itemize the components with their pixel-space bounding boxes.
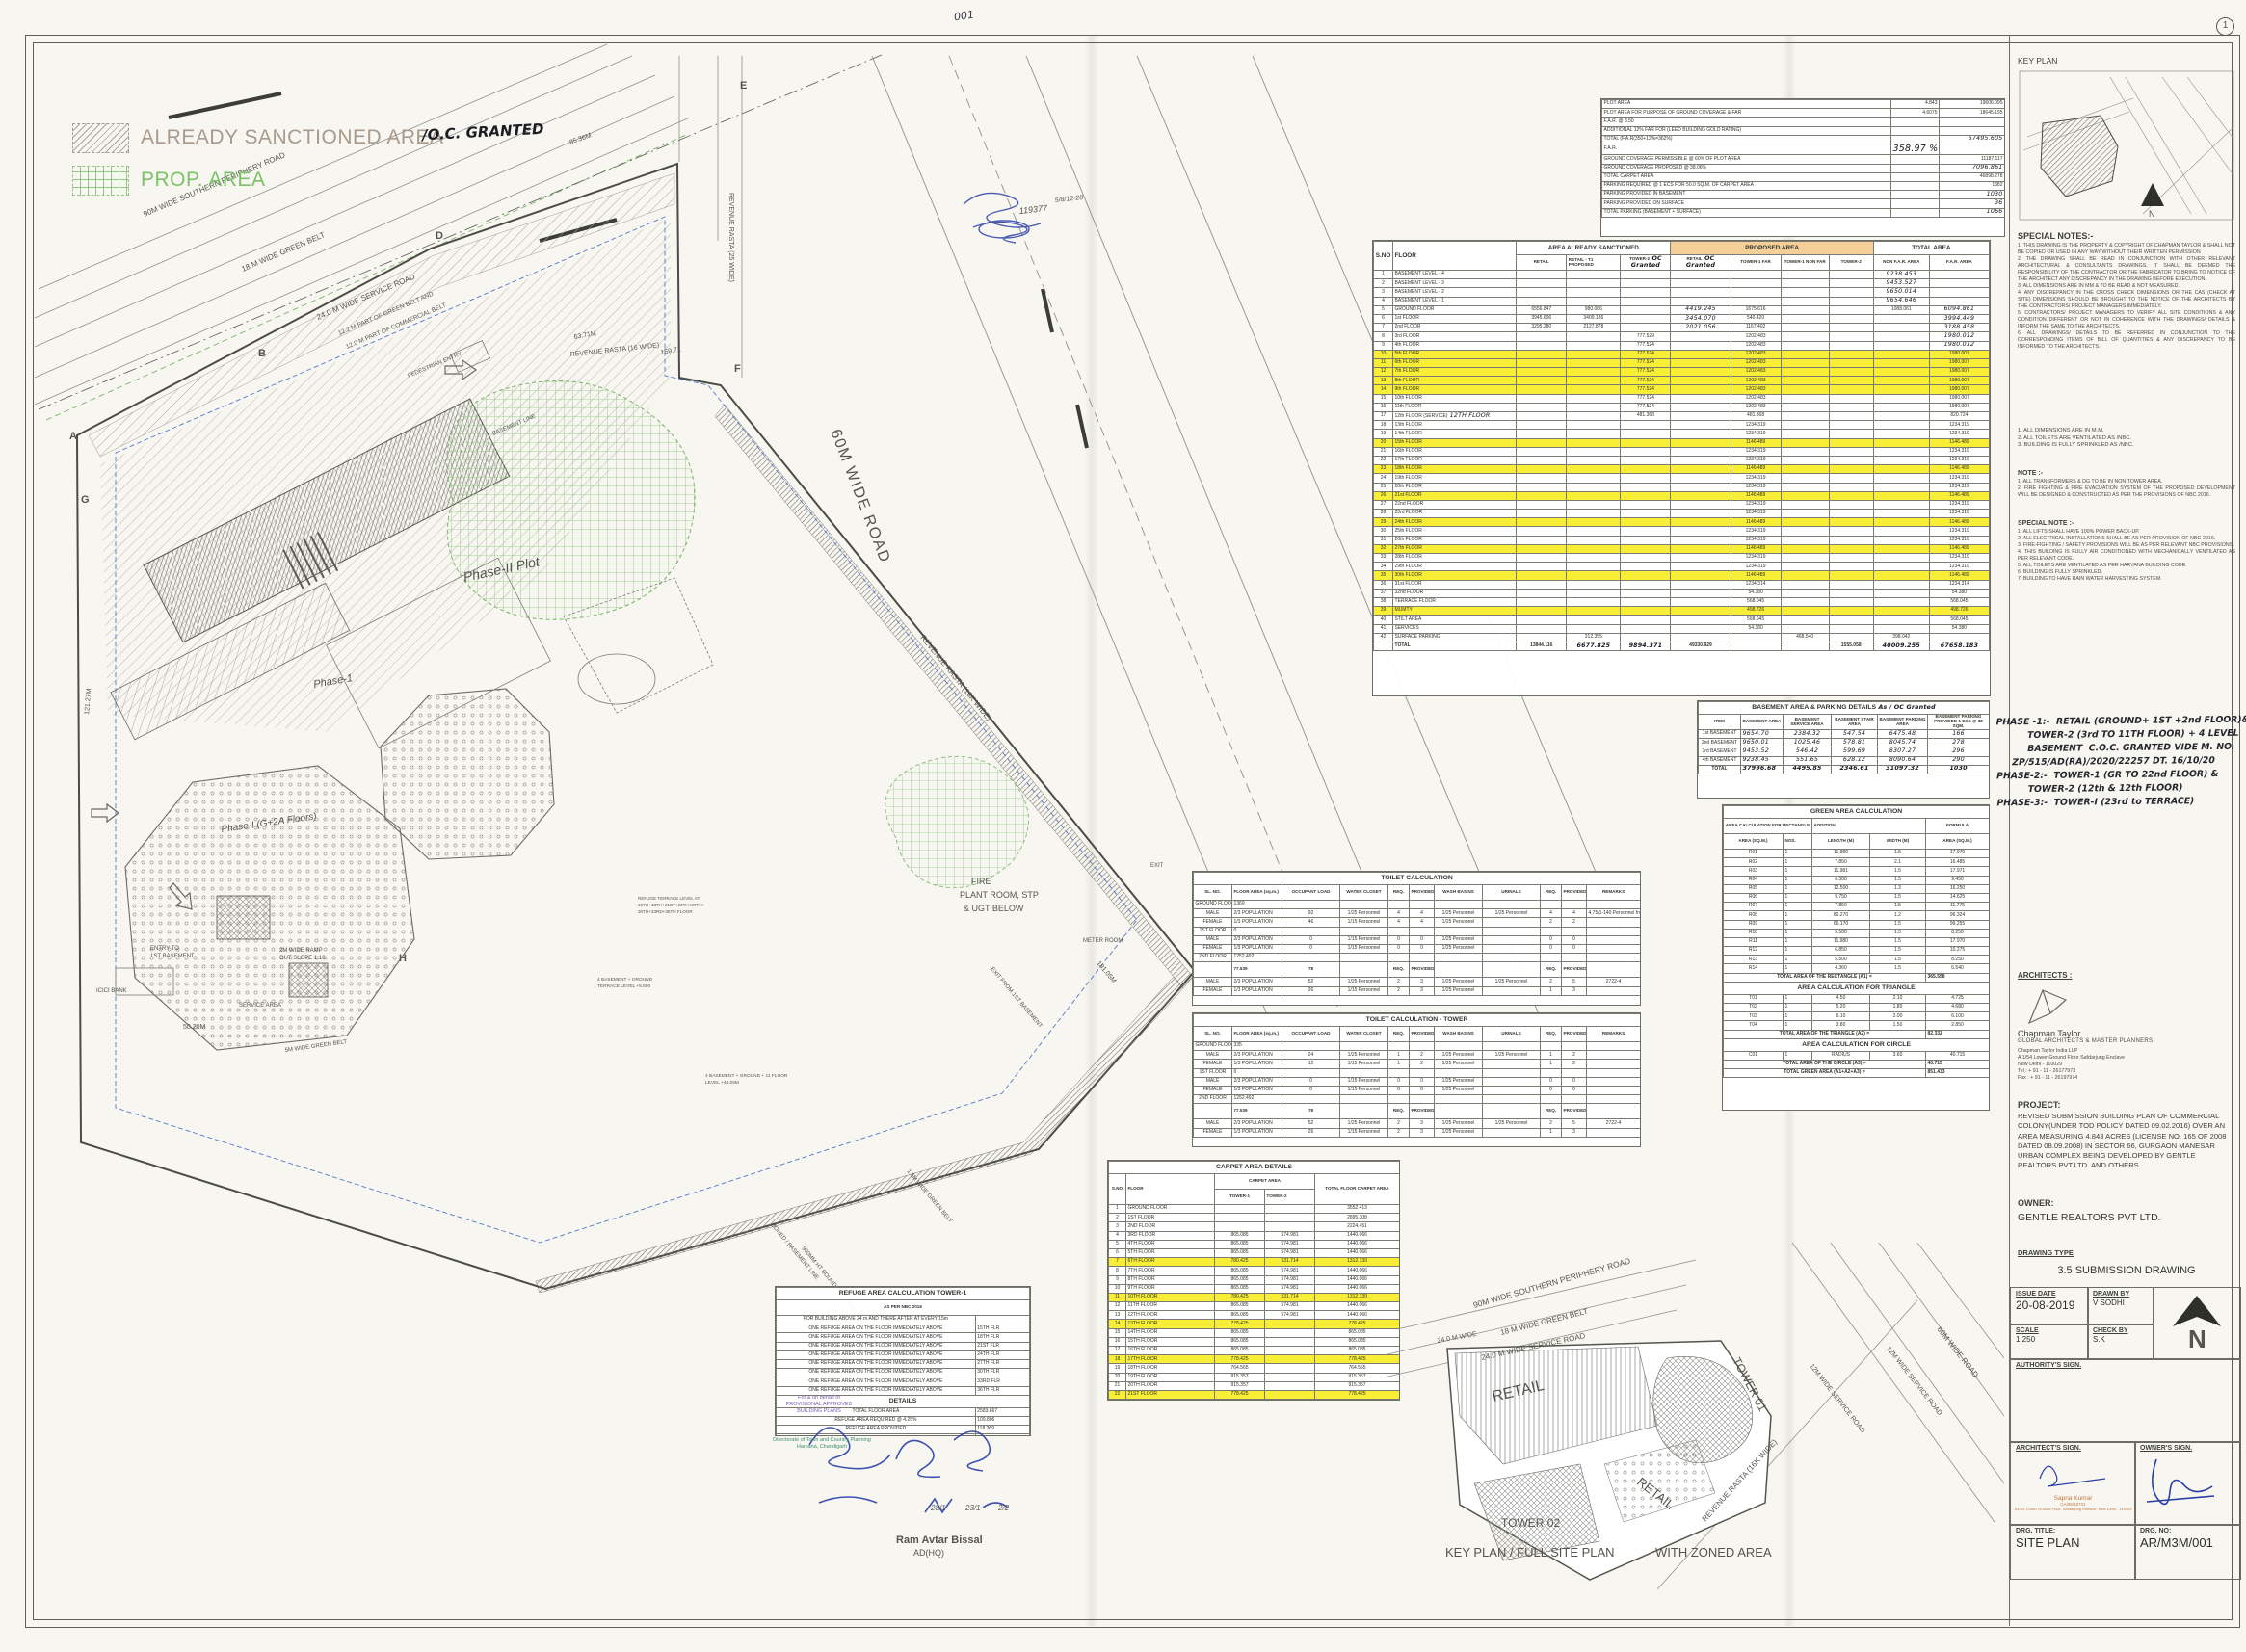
plan-label-refuge: 15TH+18TH+21ST+24TH+27TH+: [638, 903, 705, 907]
note-section: NOTE :- 1. ALL TRANSFORMERS & DG TO BE I…: [2018, 470, 2235, 499]
keyplan-road-label: 24.0 M WIDE: [1437, 1331, 1478, 1345]
grid-letter: G: [81, 494, 90, 506]
road-label: REVENUE RASTA (25 WIDE): [727, 193, 734, 282]
keyplan-road-label: 90M WIDE SOUTHERN PERIPHERY ROAD: [1472, 1256, 1631, 1310]
special-note-section: SPECIAL NOTE :- 1. ALL LIFTS SHALL HAVE …: [2018, 520, 2235, 583]
plan-label-refuge: 30TH+33RD+36TH FLOOR: [638, 909, 693, 914]
plan-label-level: 4 BASEMENT + GROUND: [597, 977, 653, 983]
toilet-table-1: TOILET CALCULATIONSL. NO.FLOOR AREA (sq.…: [1193, 872, 1640, 1005]
architect-signature: [2011, 1452, 2131, 1490]
plan-label: EXIT: [1150, 863, 1164, 869]
plan-label: METER ROOM: [1083, 938, 1123, 944]
dimension: 121.27M: [84, 688, 92, 715]
keyplan-bottom: RETAIL TOWER 01 RETAIL TOWER 02 90M WIDE…: [1378, 1243, 2004, 1589]
hw-date: 23/1: [964, 1504, 981, 1512]
authority-sign-box: AUTHORITY'S SIGN.: [2010, 1358, 2241, 1443]
keyplan-road-label: 60M WIDE ROAD: [1935, 1325, 1980, 1379]
north-label: N: [2149, 209, 2155, 219]
owner-section: OWNER: GENTLE REALTORS PVT LTD.: [2018, 1198, 2235, 1223]
drawn-by-box: DRAWN BY V SODHI: [2087, 1287, 2154, 1325]
north-box: N: [2153, 1287, 2241, 1360]
plan-label: EXIT FROM 1ST BASEMENT: [989, 966, 1043, 1029]
panel-keyplan-map: N: [2018, 69, 2235, 222]
floor-area-table: S.NOFLOORAREA ALREADY SANCTIONEDPROPOSED…: [1373, 241, 1990, 695]
plan-label-plant-room: PLANT ROOM, STP: [960, 890, 1039, 900]
project-body: REVISED SUBMISSION BUILDING PLAN OF COMM…: [2018, 1112, 2235, 1171]
grid-letter: E: [740, 80, 747, 92]
owner-title: OWNER:: [2018, 1198, 2235, 1208]
keyplan-caption: KEY PLAN / FULL SITE PLAN: [1445, 1545, 1615, 1560]
summary-table: PLOT AREA4.84319606.095PLOT AREA FOR PUR…: [1601, 99, 2004, 236]
drawing-type-value: 3.5 SUBMISSION DRAWING: [2018, 1265, 2235, 1276]
phase-notes-handwritten: PHASE -1:- RETAIL (GROUND+ 1ST +2nd FLOO…: [1995, 714, 2246, 810]
dimension: 181.05M: [1095, 960, 1117, 984]
keyplan-title: KEY PLAN: [2018, 56, 2235, 66]
plan-label-plant-room: & UGT BELOW: [964, 904, 1024, 913]
dimension: 50.20M: [183, 1024, 206, 1031]
page-number: 1: [2216, 17, 2234, 36]
svg-text:N: N: [2188, 1324, 2206, 1353]
owner-name: GENTLE REALTORS PVT LTD.: [2018, 1212, 2235, 1223]
note-title: NOTE :-: [2018, 470, 2235, 477]
plan-label-level: TERRACE LEVEL +5.500: [597, 983, 650, 989]
project-title: PROJECT:: [2018, 1100, 2235, 1110]
carpet-area-table: CARPET AREA DETAILSS.NOFLOORCARPET AREAT…: [1108, 1161, 1399, 1400]
plan-label-level: 4 BASEMENT + GROUND + 11 FLOOR: [705, 1073, 788, 1079]
drg-title-box: DRG. TITLE: SITE PLAN: [2010, 1524, 2136, 1580]
dimension: 85.36M: [568, 132, 592, 146]
project-section: PROJECT: REVISED SUBMISSION BUILDING PLA…: [2018, 1100, 2235, 1171]
grid-letter: F: [734, 363, 741, 375]
scale-box: SCALE 1:250: [2010, 1324, 2089, 1360]
basement-parking-table: BASEMENT AREA & PARKING DETAILS As / OC …: [1698, 701, 1989, 798]
plan-label: OUT SLOPE 1:10: [279, 956, 326, 961]
hw-date: 2/2: [997, 1504, 1010, 1512]
plan-label: ZONED / BASEMENT LINE: [769, 1222, 819, 1280]
plan-label-icici-bank: ICICI BANK: [96, 988, 127, 994]
plan-label: 2M WIDE RAMP: [279, 948, 323, 954]
owner-signature: [2135, 1452, 2236, 1511]
architects-title: ARCHITECTS :: [2018, 971, 2235, 980]
toilet-table-2: TOILET CALCULATION - TOWERSL. NO.FLOOR A…: [1193, 1013, 1640, 1146]
plan-label-refuge: REFUGE TERRACE LEVEL AT: [638, 896, 700, 901]
approval-signatures: 28/1 23/1 2/2 Ram Avtar Bissal AD(HQ): [752, 1387, 1079, 1589]
owner-sign-box: OWNER'S SIGN.: [2134, 1441, 2241, 1526]
keyplan-road-label: 12M WIDE SERVICE ROAD: [1808, 1363, 1865, 1434]
plan-label: SERVICE AREA: [239, 1003, 281, 1009]
hw-blue-date: 5/8/12-20: [1054, 195, 1083, 204]
road-label: 18 M WIDE GREEN BELT: [240, 230, 326, 274]
architect-logo: [2021, 984, 2070, 1027]
drawing-type-section: DRAWING TYPE 3.5 SUBMISSION DRAWING: [2018, 1248, 2235, 1276]
plan-label-level: LEVEL +44.05M: [705, 1080, 739, 1086]
north-arrow: N: [2154, 1288, 2240, 1359]
special-note-title: SPECIAL NOTE :-: [2018, 520, 2235, 527]
issue-date-box: ISSUE DATE 20-08-2019: [2010, 1287, 2089, 1325]
drg-no-box: DRG. NO: AR/M3M/001: [2134, 1524, 2241, 1580]
keyplan-road-label: 12M WIDE SERVICE ROAD: [1885, 1346, 1942, 1417]
grid-letter: A: [69, 431, 77, 442]
dimension-notes: 1. ALL DIMENSIONS ARE IN M.M.2. ALL TOIL…: [2018, 428, 2235, 450]
grid-letter: H: [399, 953, 407, 964]
architect-sign-box: ARCHITECT'S SIGN. Sapna Kumar CA/95/1873…: [2010, 1441, 2136, 1526]
legend-swatch-sanctioned: [72, 123, 129, 153]
green-area-table: GREEN AREA CALCULATIONAREA CALCULATION F…: [1723, 805, 1989, 1110]
stamp-designation: AD(HQ): [913, 1548, 944, 1558]
drawing-type-title: DRAWING TYPE: [2018, 1248, 2235, 1257]
hw-blue-number: 119377: [1018, 203, 1048, 216]
legend-swatch-prop: [72, 166, 129, 196]
stamp-name: Ram Avtar Bissal: [896, 1534, 983, 1546]
drawing-sheet: 1 001: [0, 0, 2246, 1652]
keyplan-caption: WITH ZONED AREA: [1655, 1545, 1772, 1560]
grid-letter: B: [258, 348, 266, 359]
plan-label: ENTRY TO: [150, 946, 179, 952]
check-by-box: CHECK BY S.K: [2087, 1324, 2154, 1360]
legend-prop-label: PROP. AREA: [141, 169, 266, 192]
stamp-green: Directorate of Town and Country Planning…: [759, 1437, 885, 1451]
plan-label-fire: FIRE: [971, 877, 991, 886]
architect-firm: Chapman Taylor GLOBAL ARCHITECTS & MASTE…: [2018, 1029, 2235, 1082]
grid-letter: D: [436, 230, 443, 242]
hw-date: 28/1: [930, 1504, 946, 1512]
special-notes-title: SPECIAL NOTES:-: [2018, 231, 2235, 241]
stamp-purple: For & on behalf ofPROVISIONAL APPROVEDBU…: [761, 1395, 877, 1415]
plan-label: 1ST BASEMENT: [150, 954, 195, 959]
special-notes: SPECIAL NOTES:- 1. THIS DRAWING IS THE P…: [2018, 231, 2235, 351]
architects-section: ARCHITECTS :: [2018, 971, 2235, 982]
keyplan-tower02-label: TOWER 02: [1501, 1516, 1560, 1530]
legend-sanctioned-label: ALREADY SANCTIONED AREA: [141, 126, 444, 149]
panel-keyplan-section: KEY PLAN: [2018, 56, 2235, 67]
